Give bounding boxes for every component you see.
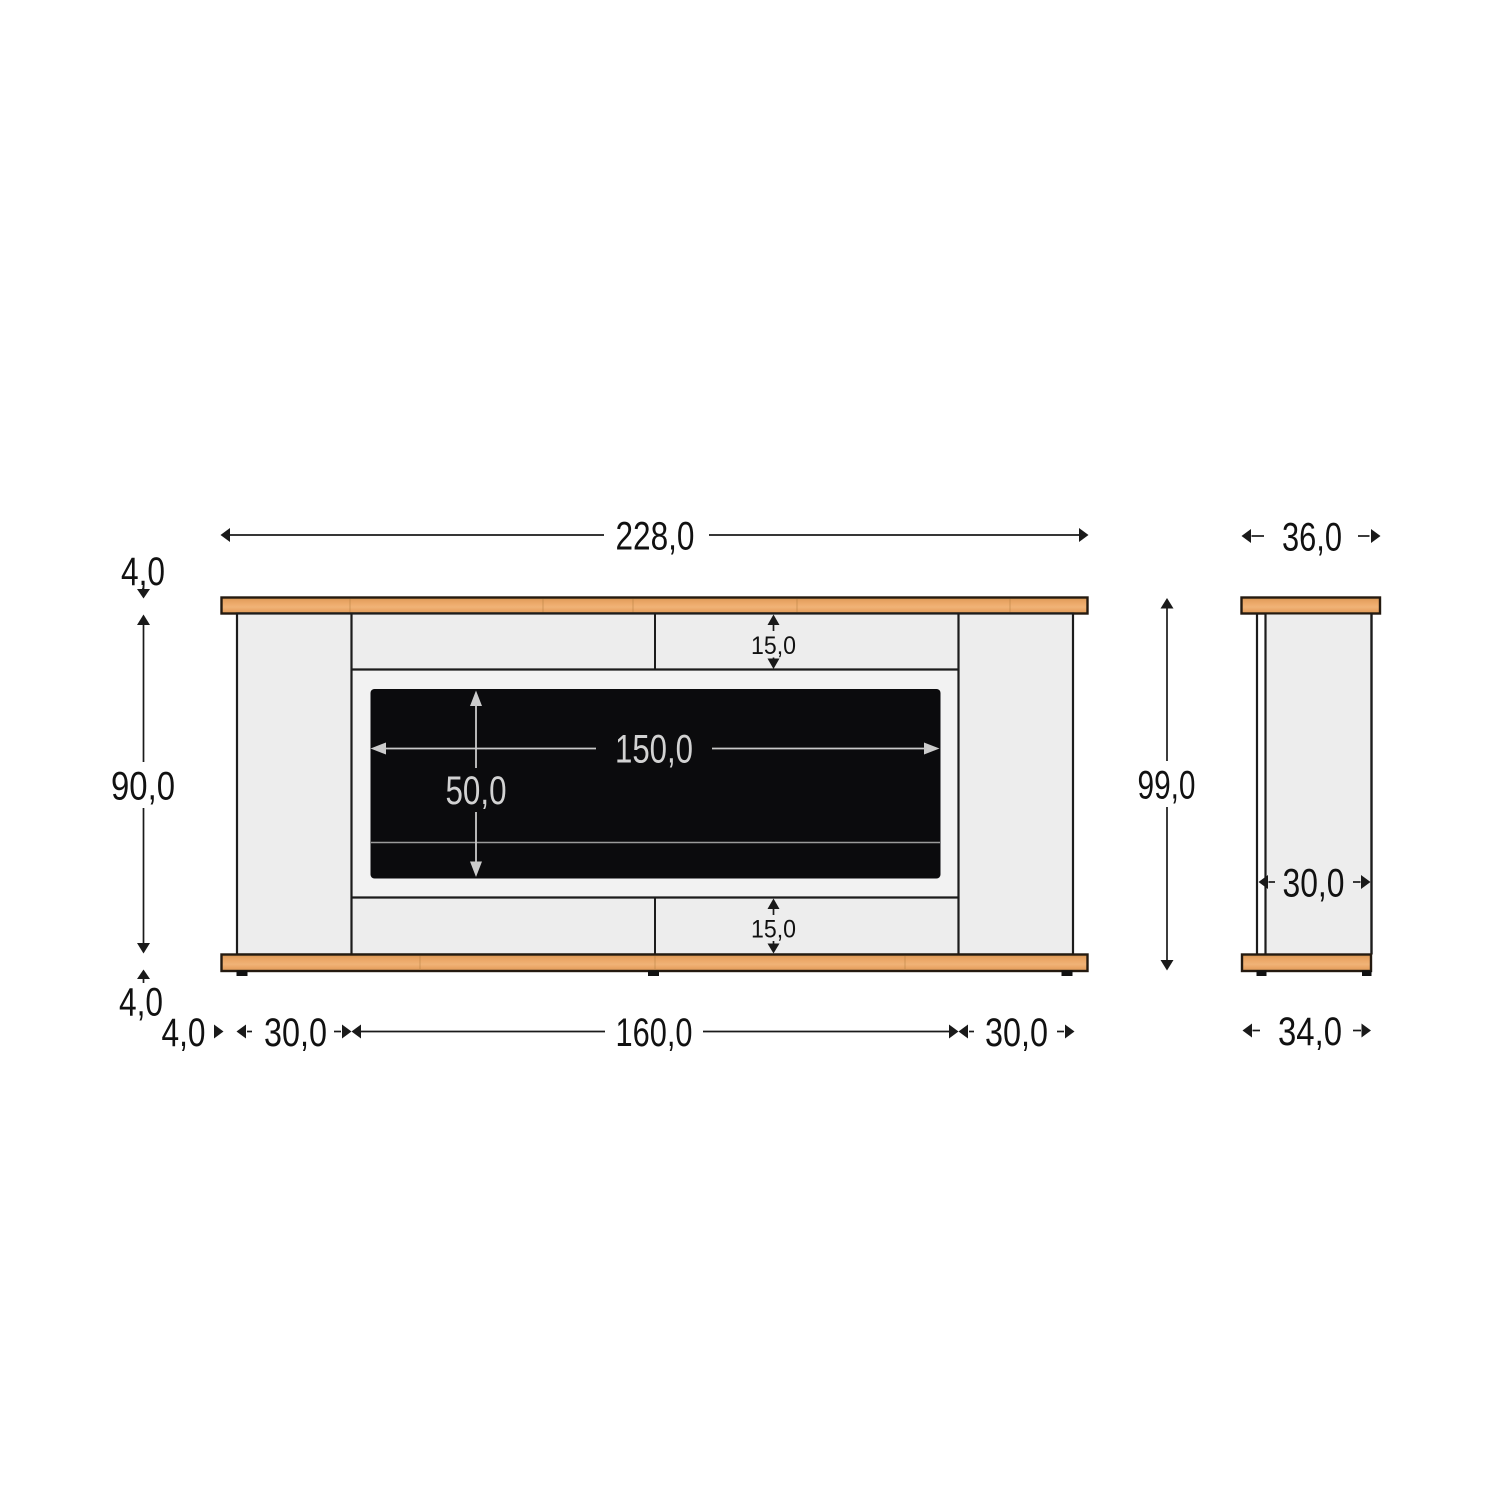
svg-text:228,0: 228,0 (616, 514, 695, 558)
svg-text:90,0: 90,0 (111, 764, 175, 808)
svg-text:15,0: 15,0 (751, 915, 796, 943)
svg-text:34,0: 34,0 (1278, 1010, 1342, 1054)
svg-text:4,0: 4,0 (162, 1011, 206, 1055)
svg-text:30,0: 30,0 (1283, 861, 1345, 905)
svg-text:36,0: 36,0 (1282, 515, 1342, 559)
svg-text:15,0: 15,0 (751, 632, 796, 660)
svg-text:160,0: 160,0 (616, 1011, 693, 1055)
svg-text:4,0: 4,0 (119, 980, 163, 1024)
svg-text:30,0: 30,0 (985, 1011, 1048, 1055)
svg-text:150,0: 150,0 (615, 728, 693, 772)
svg-text:50,0: 50,0 (446, 769, 507, 813)
svg-text:99,0: 99,0 (1138, 763, 1196, 807)
svg-text:30,0: 30,0 (264, 1011, 327, 1055)
